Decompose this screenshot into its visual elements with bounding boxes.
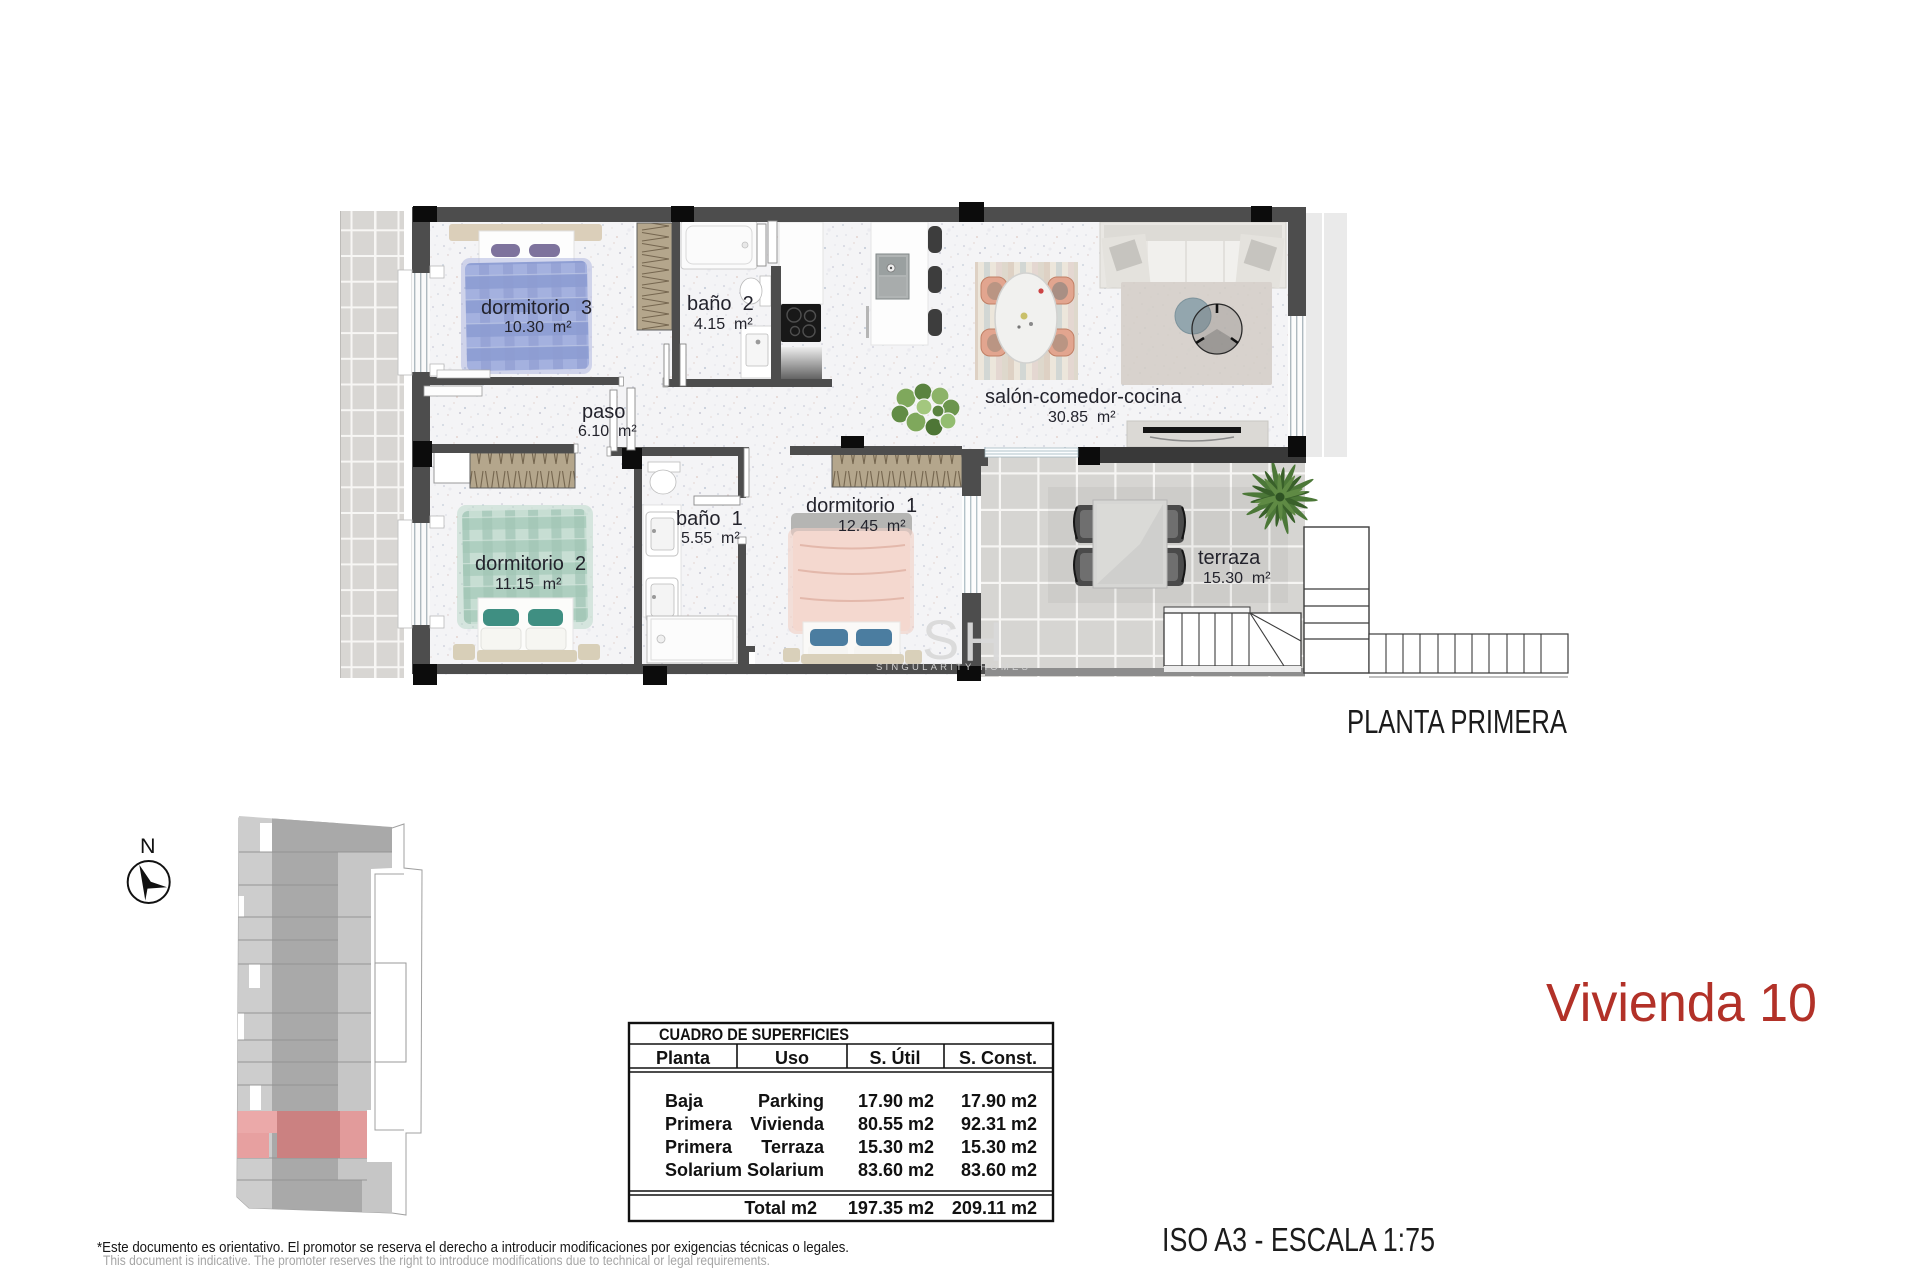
- svg-text:PLANTA PRIMERA: PLANTA PRIMERA: [1347, 703, 1567, 740]
- svg-text:12.45 m²: 12.45 m²: [838, 518, 906, 535]
- svg-text:Parking: Parking: [758, 1091, 824, 1111]
- svg-text:Primera: Primera: [665, 1137, 733, 1157]
- svg-text:11.15 m²: 11.15 m²: [495, 576, 562, 593]
- svg-text:5.55 m²: 5.55 m²: [681, 530, 740, 547]
- svg-text:4.15 m²: 4.15 m²: [694, 316, 753, 333]
- svg-text:15.30 m2: 15.30 m2: [961, 1137, 1037, 1157]
- svg-text:Vivienda: Vivienda: [750, 1114, 825, 1134]
- svg-text:6.10 m²: 6.10 m²: [578, 423, 637, 440]
- svg-text:83.60 m2: 83.60 m2: [858, 1160, 934, 1180]
- svg-text:Solarium: Solarium: [665, 1160, 742, 1180]
- svg-text:80.55 m2: 80.55 m2: [858, 1114, 934, 1134]
- svg-text:dormitorio 1: dormitorio 1: [806, 495, 917, 517]
- svg-text:17.90 m2: 17.90 m2: [961, 1091, 1037, 1111]
- svg-text:salón-comedor-cocina: salón-comedor-cocina: [985, 386, 1183, 408]
- svg-text:197.35 m2: 197.35 m2: [848, 1198, 934, 1218]
- svg-text:ISO A3 - ESCALA 1:75: ISO A3 - ESCALA 1:75: [1162, 1221, 1435, 1258]
- svg-text:Baja: Baja: [665, 1091, 704, 1111]
- svg-text:15.30 m2: 15.30 m2: [858, 1137, 934, 1157]
- svg-text:Solarium: Solarium: [747, 1160, 824, 1180]
- svg-text:92.31 m2: 92.31 m2: [961, 1114, 1037, 1134]
- svg-text:CUADRO DE SUPERFICIES: CUADRO DE SUPERFICIES: [659, 1025, 849, 1044]
- svg-text:Uso: Uso: [775, 1048, 809, 1068]
- svg-text:baño 2: baño 2: [687, 293, 754, 315]
- svg-text:Primera: Primera: [665, 1114, 733, 1134]
- svg-text:This document is indicative. T: This document is indicative. The promote…: [103, 1253, 770, 1268]
- svg-text:17.90 m2: 17.90 m2: [858, 1091, 934, 1111]
- svg-text:terraza: terraza: [1198, 547, 1261, 569]
- svg-text:Planta: Planta: [656, 1048, 711, 1068]
- svg-text:dormitorio 2: dormitorio 2: [475, 553, 586, 575]
- svg-text:Vivienda 10: Vivienda 10: [1546, 973, 1817, 1033]
- svg-text:209.11 m2: 209.11 m2: [952, 1198, 1037, 1218]
- svg-text:S. Útil: S. Útil: [869, 1047, 920, 1068]
- svg-text:N: N: [140, 834, 156, 858]
- svg-text:30.85 m²: 30.85 m²: [1048, 409, 1116, 426]
- svg-text:SINGULARITY HOMES: SINGULARITY HOMES: [876, 662, 1031, 673]
- svg-text:paso: paso: [582, 401, 625, 423]
- svg-text:S. Const.: S. Const.: [959, 1048, 1037, 1068]
- svg-text:83.60 m2: 83.60 m2: [961, 1160, 1037, 1180]
- svg-text:Total m2: Total m2: [744, 1198, 817, 1218]
- svg-text:10.30 m²: 10.30 m²: [504, 319, 572, 336]
- svg-text:15.30 m²: 15.30 m²: [1203, 570, 1271, 587]
- svg-text:Terraza: Terraza: [761, 1137, 825, 1157]
- svg-text:baño 1: baño 1: [676, 508, 743, 530]
- svg-text:dormitorio 3: dormitorio 3: [481, 297, 592, 319]
